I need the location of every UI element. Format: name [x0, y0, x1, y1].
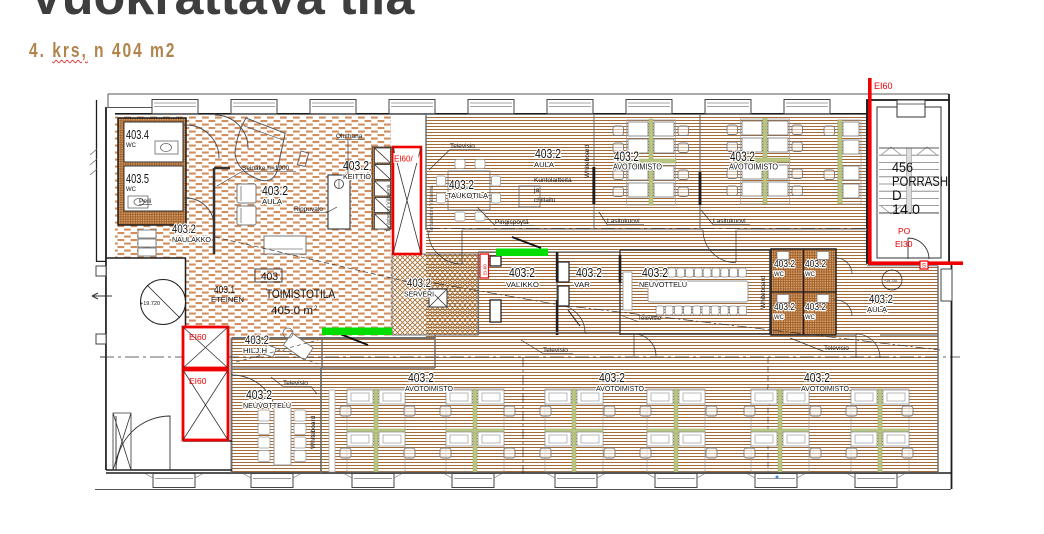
svg-text:403.4: 403.4 [126, 128, 149, 142]
svg-text:Televisio: Televisio [824, 345, 849, 352]
svg-text:KEITTIÖ: KEITTIÖ [343, 172, 371, 181]
svg-text:403.2: 403.2 [804, 370, 830, 385]
svg-text:Kuntolaitteita: Kuntolaitteita [534, 177, 572, 184]
svg-text:403.5: 403.5 [126, 172, 149, 186]
svg-text:AVOTOIMISTO: AVOTOIMISTO [405, 384, 453, 393]
svg-text:EI60: EI60 [874, 81, 893, 91]
svg-text:403.2: 403.2 [599, 370, 625, 385]
svg-text:VALIKKO: VALIKKO [506, 280, 539, 289]
svg-text:403.2: 403.2 [535, 146, 561, 161]
svg-text:AVOTOIMISTO: AVOTOIMISTO [801, 384, 849, 393]
svg-text:HILJ.H: HILJ.H [243, 348, 267, 355]
svg-text:14.0: 14.0 [892, 202, 920, 217]
svg-text:TAUKOTILA: TAUKOTILA [447, 191, 488, 200]
svg-text:WC: WC [774, 315, 785, 321]
svg-text:403.2: 403.2 [869, 292, 893, 306]
svg-text:Lasitukuovi: Lasitukuovi [713, 218, 746, 225]
svg-text:NEUVOTTELU: NEUVOTTELU [243, 401, 291, 410]
svg-text:AVOTOIMISTO: AVOTOIMISTO [596, 384, 644, 393]
svg-text:AULA: AULA [867, 305, 887, 314]
svg-text:chillailu: chillailu [534, 197, 556, 204]
svg-text:403.2: 403.2 [642, 265, 668, 280]
svg-text:403.2: 403.2 [343, 158, 369, 173]
svg-text:403.2: 403.2 [509, 265, 535, 280]
svg-text:Rippuvalo: Rippuvalo [294, 206, 323, 213]
svg-text:EI30: EI30 [895, 239, 913, 249]
svg-text:Peili: Peili [139, 198, 151, 205]
svg-text:403.2: 403.2 [407, 276, 431, 290]
svg-text:WC: WC [805, 315, 816, 321]
svg-text:456: 456 [892, 160, 913, 175]
svg-text:SERVERI: SERVERI [404, 292, 434, 299]
svg-text:AULA: AULA [262, 197, 282, 206]
svg-text:ETEINEN: ETEINEN [211, 297, 244, 304]
svg-text:Oluthana: Oluthana [336, 133, 363, 140]
svg-text:403: 403 [261, 271, 278, 283]
svg-text:Teräsbetoni Väliseinä: Teräsbetoni Väliseinä [386, 184, 392, 232]
svg-text:Whiteboard: Whiteboard [310, 415, 317, 449]
svg-text:PO: PO [898, 226, 911, 236]
svg-text:Whiteboard: Whiteboard [584, 144, 591, 178]
svg-text:+19.720: +19.720 [884, 279, 897, 283]
svg-text:403.1: 403.1 [214, 284, 235, 296]
svg-text:NAULAKKO: NAULAKKO [172, 237, 212, 244]
svg-text:405.0 m: 405.0 m [271, 305, 313, 317]
svg-text:AVOTOIMISTO: AVOTOIMISTO [613, 163, 662, 172]
svg-text:403.2: 403.2 [245, 333, 269, 347]
svg-text:EI60: EI60 [189, 332, 207, 342]
svg-text:WC: WC [126, 143, 137, 149]
svg-text:EI60/: EI60/ [394, 155, 413, 164]
svg-text:403.2: 403.2 [172, 222, 196, 236]
svg-text:403.2: 403.2 [449, 177, 474, 192]
svg-text:AULA: AULA [534, 160, 554, 169]
svg-text:WC: WC [805, 272, 816, 278]
svg-text:403.2: 403.2 [408, 370, 434, 385]
svg-text:Teräsbetoni Väliseinä: Teräsbetoni Väliseinä [429, 185, 435, 233]
svg-text:Pingispöytä: Pingispöytä [495, 219, 529, 226]
svg-text:PORRASH: PORRASH [892, 174, 948, 189]
svg-text:403.2: 403.2 [262, 183, 288, 198]
svg-text:Lasitukuovi: Lasitukuovi [607, 218, 640, 225]
svg-text:S: S [922, 264, 926, 270]
svg-text:WC: WC [126, 187, 137, 193]
svg-text:Seinäke h=1900: Seinäke h=1900 [242, 165, 290, 172]
svg-text:Whiteboard: Whiteboard [760, 275, 767, 309]
svg-text:ja: ja [533, 187, 539, 194]
svg-text:Televisio: Televisio [283, 380, 308, 387]
svg-text:403.2: 403.2 [246, 387, 272, 402]
svg-text:Televisio: Televisio [450, 143, 475, 150]
svg-text:Televisio: Televisio [543, 347, 568, 354]
svg-text:D: D [892, 188, 902, 203]
svg-text:EI-60: EI-60 [483, 264, 488, 275]
svg-text:403.2: 403.2 [576, 265, 602, 280]
svg-text:+19.720: +19.720 [140, 301, 160, 307]
svg-text:VAR: VAR [574, 280, 591, 289]
svg-text:NEUVOTTELU: NEUVOTTELU [639, 280, 687, 289]
svg-text:EI60: EI60 [189, 376, 207, 386]
svg-text:WC: WC [774, 272, 785, 278]
svg-text:Televisio: Televisio [638, 316, 662, 322]
svg-text:TOIMISTOTILA: TOIMISTOTILA [266, 287, 335, 301]
svg-text:AVOTOIMISTO: AVOTOIMISTO [729, 163, 778, 172]
